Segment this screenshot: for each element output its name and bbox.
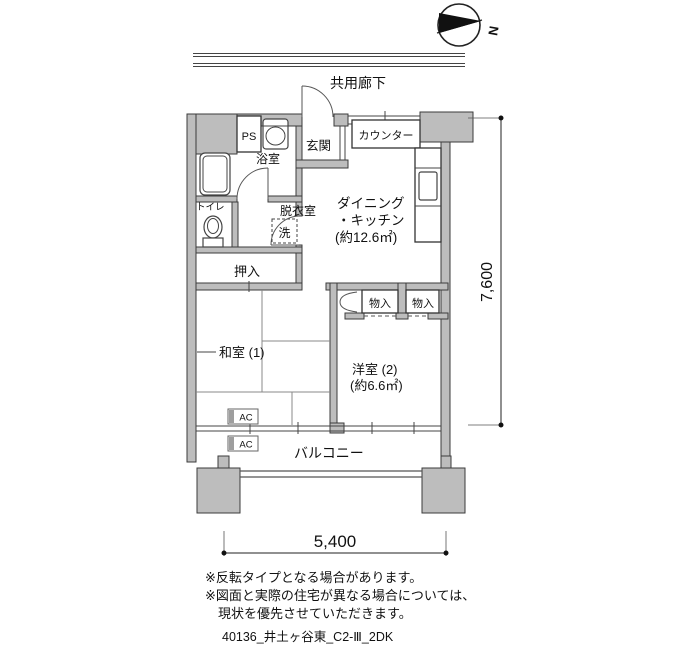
wall-storage-bottom-b [396,313,408,319]
dk-label-line1: ダイニング [337,196,405,211]
japanese-room-label: 和室 (1) [219,345,265,360]
entrance-door-arc [302,86,333,117]
note-line3: 現状を優先させていただきます。 [218,606,412,621]
ac-upper-label: AC [239,413,252,424]
folding-door-upper [340,292,357,302]
wall-stub-bottom-right [441,456,451,468]
bath-door-arc [237,168,268,199]
entrance-label: 玄関 [306,138,331,153]
wall-bath-bottom-right [268,196,302,202]
dk-label-line3: (約12.6㎡) [335,230,397,245]
toilet-tank [203,238,223,247]
wall-entrance-bottom [296,160,348,168]
wall-pillar-top-right [420,112,473,142]
notes: ※反転タイプとなる場合があります。 ※図面と実際の住宅が異なる場合については、 … [205,570,475,621]
north-label: N [485,25,501,37]
toilet-fixture [203,216,223,247]
ac-lower-label: AC [239,440,252,451]
floor-plan-page: N 共用廊下 [0,0,700,650]
washer-label: 洗 [278,226,290,240]
wall-dk-bottom [326,283,448,290]
balcony-railing [240,471,422,477]
wall-storage-bottom-c [428,313,448,319]
north-arrow-icon [439,13,481,33]
wall-toilet-right [232,202,238,253]
dk-label-line2: ・キッチン [337,213,405,228]
wall-pillar-bottom-right [422,468,465,513]
dimension-right: 7,600 [468,116,504,428]
kitchen-unit [415,148,441,242]
toilet-label: トイレ [196,202,225,213]
note-line2: ※図面と実際の住宅が異なる場合については、 [205,588,475,603]
entrance-door [302,86,333,117]
counter-label: カウンター [359,129,414,142]
folding-door-lower [340,302,357,312]
western-room-label-line2: (約6.6㎡) [350,378,403,393]
bathroom-label: 浴室 [256,151,280,166]
compass: N [437,4,502,46]
wall-room-divider [330,283,337,432]
storage2-label: 物入 [412,296,434,310]
dimension-right-value: 7,600 [479,262,496,302]
dimension-bottom-value: 5,400 [314,532,357,551]
dimension-bottom: 5,400 [222,531,449,556]
wall-storage-bottom-a [345,313,364,319]
floor-plan-drawing: N 共用廊下 [0,0,700,650]
wall-right [441,142,450,477]
bathtub [200,153,230,195]
storage1-label: 物入 [369,296,391,310]
corridor-label: 共用廊下 [330,75,386,91]
entrance-step [340,126,345,160]
corridor-lines [193,54,465,67]
ps-label: PS [242,131,257,143]
balcony-label: バルコニー [294,445,364,461]
toilet-bowl [204,216,222,238]
wall-top-stub [334,114,348,126]
western-room-label-line1: 洋室 (2) [352,362,398,377]
note-line1: ※反転タイプとなる場合があります。 [205,570,422,585]
kitchen-sink [419,172,437,200]
wall-oshiire-top [196,247,302,253]
wall-pillar-bottom-left [197,468,240,513]
wall-stub-bottom-left [218,456,229,468]
oshiire-label: 押入 [234,264,260,279]
ac-upper-box: AC [228,409,258,424]
wall-left [187,114,196,462]
drawing-id: 40136_井土ヶ谷東_C2-Ⅲ_2DK [222,630,394,644]
ac-lower-box: AC [228,436,258,451]
